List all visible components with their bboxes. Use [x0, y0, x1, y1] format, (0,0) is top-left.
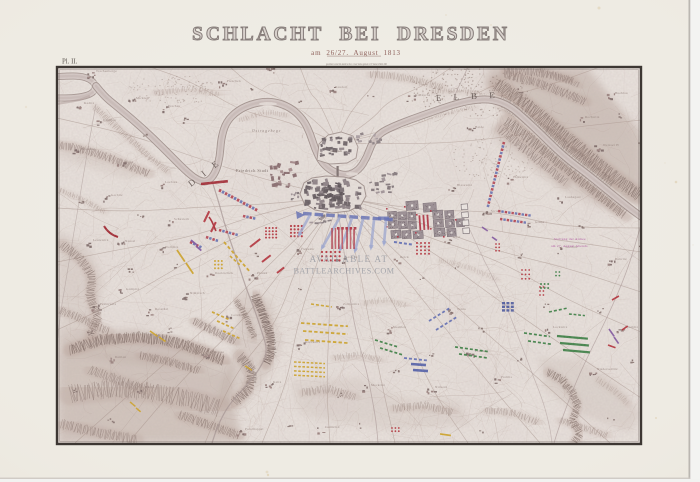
- svg-text:Pl. II.: Pl. II.: [62, 59, 78, 66]
- svg-text:gezeichnet von der lith. Ansta: gezeichnet von der lith. Anstalt bei Sec…: [326, 63, 387, 66]
- svg-text:SCHLACHT BEI DRESDEN: SCHLACHT BEI DRESDEN: [192, 24, 510, 45]
